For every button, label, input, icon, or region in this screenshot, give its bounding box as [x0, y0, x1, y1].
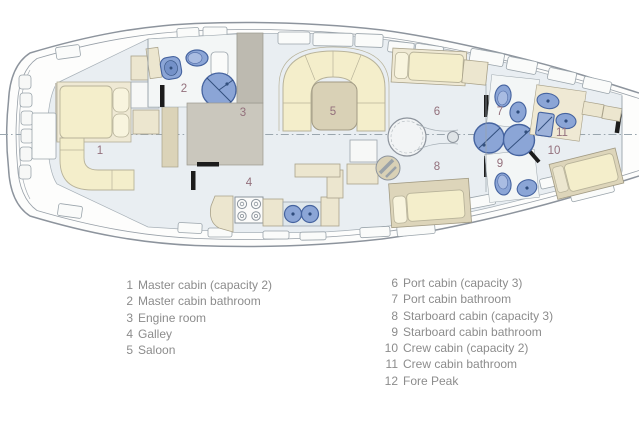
legend-number: 11	[382, 356, 398, 372]
legend-number: 10	[382, 340, 398, 356]
master-bathroom-shower	[202, 73, 236, 107]
room-label-7: 7	[497, 106, 503, 118]
legend-item-12: 12Fore Peak	[382, 373, 553, 389]
port-berth-pillow	[394, 52, 408, 79]
legend-right-column: 6Port cabin (capacity 3) 7Port cabin bat…	[382, 275, 553, 389]
room-label-1: 1	[97, 145, 103, 157]
mast-post	[448, 132, 459, 143]
deck-plan-svg: 1 2 3 4 5 6 7 8 9 10 11	[0, 0, 639, 266]
master-bed-pillow	[113, 88, 129, 112]
legend-item-4: 4Galley	[117, 326, 272, 342]
legend-item-6: 6Port cabin (capacity 3)	[382, 275, 553, 291]
legend-number: 1	[117, 277, 133, 293]
legend-label: Port cabin (capacity 3)	[403, 275, 522, 291]
saloon-cabinet-white	[350, 140, 377, 162]
legend-item-7: 7Port cabin bathroom	[382, 291, 553, 307]
galley-counter-right	[321, 197, 339, 226]
dinette-table	[388, 118, 426, 156]
yacht-deck-plan: 1 2 3 4 5 6 7 8 9 10 11	[0, 0, 639, 266]
legend-item-5: 5Saloon	[117, 342, 272, 358]
master-bed-mattress	[60, 86, 112, 138]
legend-number: 7	[382, 291, 398, 307]
helm-stool	[376, 156, 400, 180]
legend-label: Crew cabin bathroom	[403, 356, 517, 372]
starboard-bathroom	[485, 147, 540, 202]
legend-label: Port cabin bathroom	[403, 291, 511, 307]
room-label-9: 9	[497, 158, 503, 170]
port-berth-mattress	[408, 52, 463, 83]
legend-label: Saloon	[138, 342, 175, 358]
legend-item-8: 8Starboard cabin (capacity 3)	[382, 308, 553, 324]
starboard-cabin	[389, 178, 472, 227]
legend-number: 5	[117, 342, 133, 358]
legend-number: 4	[117, 326, 133, 342]
legend-number: 3	[117, 310, 133, 326]
legend-item-1: 1Master cabin (capacity 2)	[117, 277, 272, 293]
legend-number: 6	[382, 275, 398, 291]
legend-item-11: 11Crew cabin bathroom	[382, 356, 553, 372]
saloon-cabinet-cream	[347, 164, 378, 184]
master-bathroom-toilet	[186, 50, 208, 66]
room-label-6: 6	[434, 106, 440, 118]
master-bed-pillow	[113, 114, 129, 137]
room-label-3: 3	[240, 107, 246, 119]
legend-left-column: 1Master cabin (capacity 2) 2Master cabin…	[117, 277, 272, 358]
crew-bathroom-shower	[535, 112, 554, 137]
room-label-4: 4	[246, 177, 253, 189]
legend-number: 8	[382, 308, 398, 324]
legend-label: Master cabin bathroom	[138, 293, 261, 309]
room-label-11: 11	[556, 127, 568, 139]
galley-stove	[235, 197, 263, 223]
legend-item-9: 9Starboard cabin bathroom	[382, 324, 553, 340]
room-label-2: 2	[181, 83, 187, 95]
legend-label: Master cabin (capacity 2)	[138, 277, 272, 293]
legend-label: Crew cabin (capacity 2)	[403, 340, 528, 356]
legend-item-3: 3Engine room	[117, 310, 272, 326]
galley-cabinet-top	[295, 164, 340, 177]
room-label-10: 10	[548, 145, 561, 157]
legend-number: 2	[117, 293, 133, 309]
master-desk	[32, 113, 56, 159]
legend-label: Engine room	[138, 310, 206, 326]
master-bathroom	[146, 34, 237, 107]
legend-label: Galley	[138, 326, 172, 342]
legend-label: Fore Peak	[403, 373, 458, 389]
legend-label: Starboard cabin (capacity 3)	[403, 308, 553, 324]
room-label-8: 8	[434, 161, 440, 173]
legend-number: 9	[382, 324, 398, 340]
starboard-berth-mattress	[406, 190, 465, 222]
legend-item-10: 10Crew cabin (capacity 2)	[382, 340, 553, 356]
galley-sinks	[283, 202, 321, 226]
port-cabinet	[462, 60, 488, 85]
legend-item-2: 2Master cabin bathroom	[117, 293, 272, 309]
starboard-berth-pillow	[393, 196, 408, 224]
galley-counter-mid	[263, 199, 283, 226]
room-label-5: 5	[330, 106, 336, 118]
legend-number: 12	[382, 373, 398, 389]
master-bathroom-sink	[159, 55, 183, 80]
legend-label: Starboard cabin bathroom	[403, 324, 542, 340]
